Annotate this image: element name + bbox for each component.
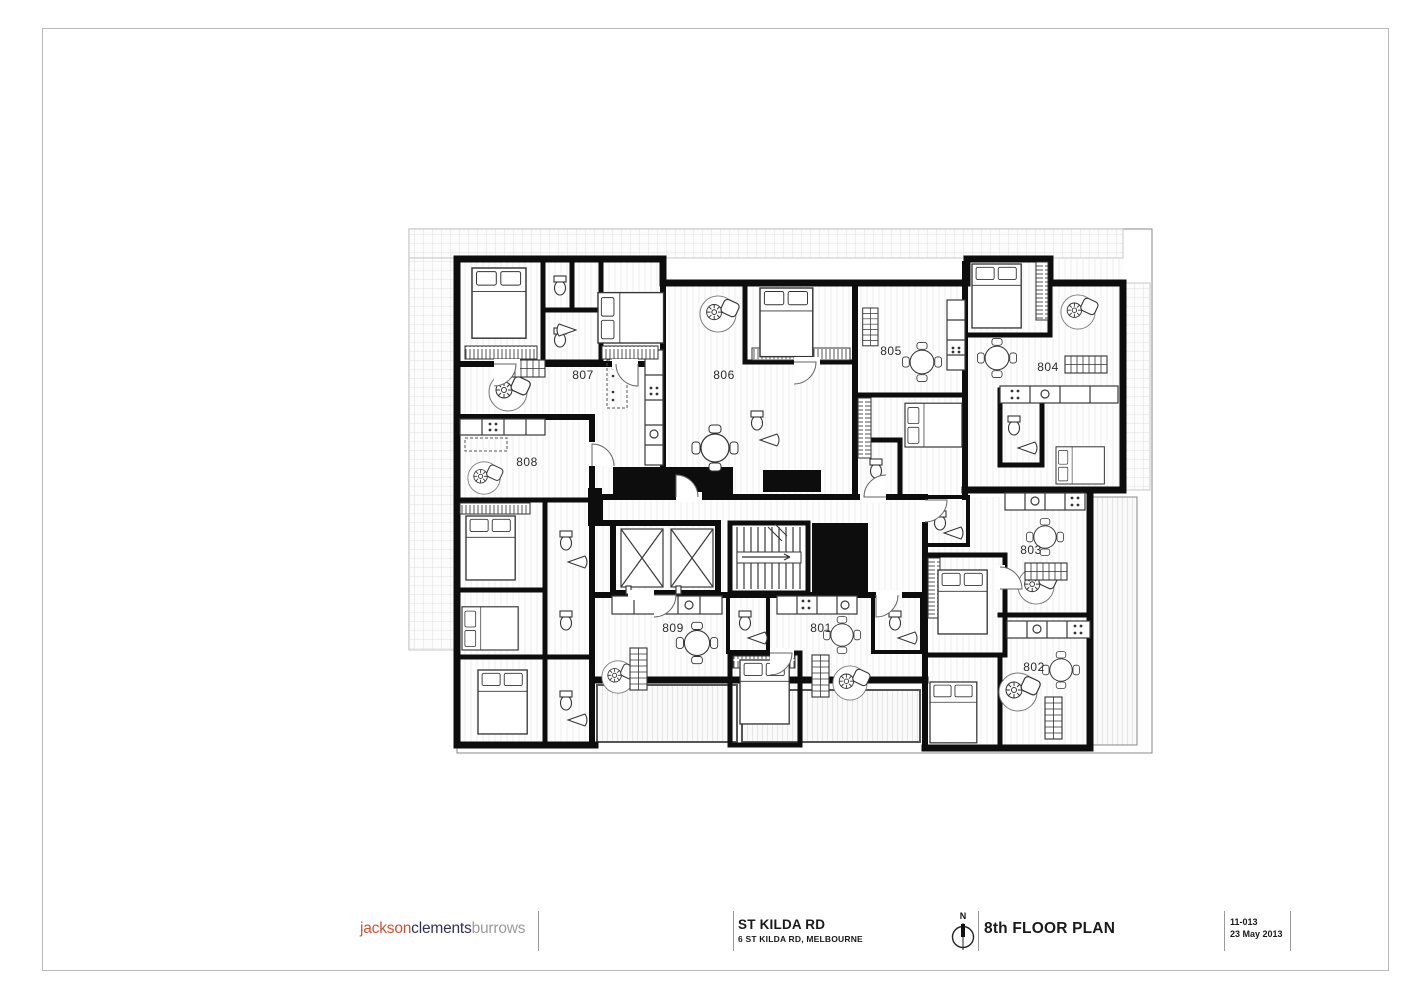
firm-logo: jacksonclementsburrows <box>360 920 525 938</box>
project-title: ST KILDA RD <box>738 917 863 932</box>
logo-part-burrows: burrows <box>472 920 526 937</box>
north-label: N <box>960 911 967 921</box>
titleblock-divider <box>978 911 979 951</box>
apartment-label-801: 801 <box>810 621 832 635</box>
apartment-label-805: 805 <box>880 344 902 358</box>
north-arrow: N <box>946 908 980 956</box>
apartment-label-803: 803 <box>1020 543 1042 557</box>
titleblock-divider <box>733 911 734 951</box>
staircase <box>730 523 808 593</box>
drawing-number: 11-013 <box>1230 917 1283 929</box>
project-address: 6 ST KILDA RD, MELBOURNE <box>738 934 863 944</box>
logo-part-jackson: jackson <box>360 920 411 937</box>
apartment-label-809: 809 <box>662 621 684 635</box>
apartment-label-808: 808 <box>516 455 538 469</box>
project-info: ST KILDA RD 6 ST KILDA RD, MELBOURNE <box>738 917 863 944</box>
apartment-label-804: 804 <box>1037 360 1059 374</box>
drawing-sheet: { "sheet": { "border_color": "#b9b9b9" }… <box>0 0 1415 1000</box>
drawing-title: 8th FLOOR PLAN <box>984 920 1115 938</box>
apartment-label-807: 807 <box>572 368 594 382</box>
drawing-meta: 11-013 23 May 2013 <box>1230 917 1283 940</box>
logo-part-clements: clements <box>411 920 471 937</box>
apartment-label-806: 806 <box>713 368 735 382</box>
drawing-date: 23 May 2013 <box>1230 929 1283 941</box>
titleblock-divider <box>1290 911 1291 951</box>
titleblock-divider <box>538 911 539 951</box>
titleblock-divider <box>1224 911 1225 951</box>
apartment-label-802: 802 <box>1023 660 1045 674</box>
floor-plan-drawing: 807806805804808803809801802 <box>0 0 1415 1000</box>
